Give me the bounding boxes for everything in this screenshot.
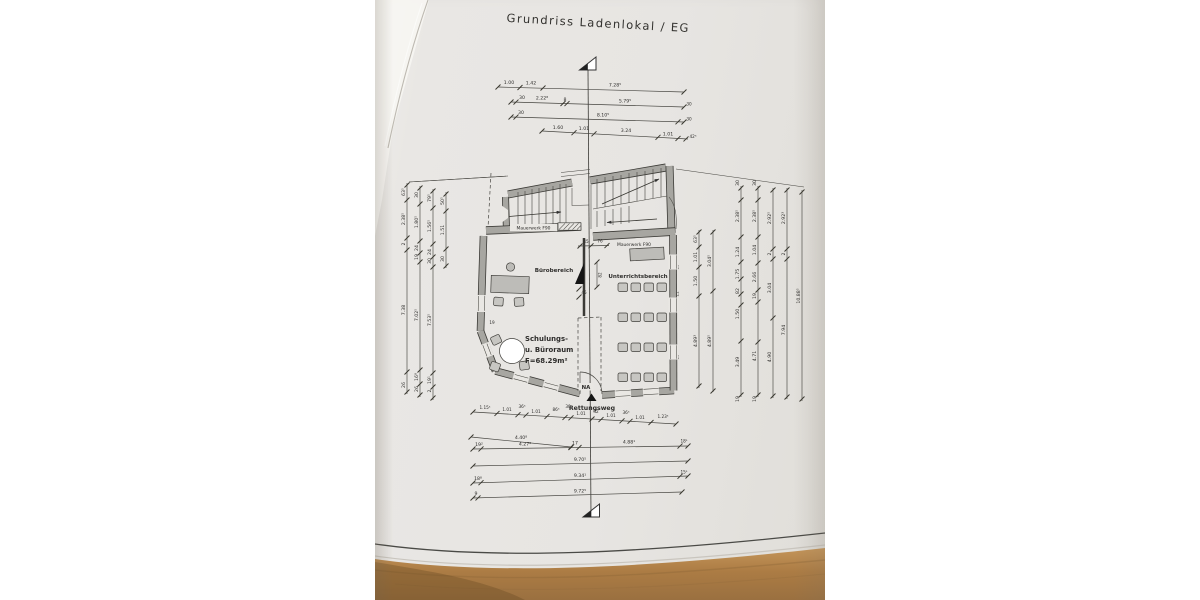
office-furniture (489, 263, 529, 372)
exit-label-na: NA (582, 385, 592, 391)
dim-label: 30 (686, 102, 692, 107)
dim-label: 18⁸ (474, 476, 482, 482)
desk (491, 275, 530, 293)
dim-label: 2 (427, 389, 433, 392)
door-symbol-black-triangle (575, 263, 584, 284)
dim-label: 7.02⁵ (414, 309, 420, 321)
chair (514, 297, 524, 306)
dim-label: 1.01 (576, 411, 586, 416)
dim-label: 4.88¹ (623, 440, 635, 446)
dim-label: 2.92⁵ (767, 212, 773, 224)
dim-label: 1.01 (579, 126, 589, 132)
dim-label: 2.66 (752, 272, 758, 282)
dim-label: 7.53⁵ (427, 314, 433, 326)
dim-label: 4.89³ (693, 335, 699, 347)
dim-label: 1.00 (504, 80, 514, 86)
dim-label: 2.38⁵ (752, 210, 758, 222)
chair (490, 334, 502, 346)
dim-label: 3.24 (621, 128, 631, 134)
dim-label: 1.60 (553, 125, 563, 131)
dim-label: 26 (401, 382, 407, 388)
round-table (500, 339, 525, 364)
drawing-frame-line (375, 533, 825, 553)
dim-label: 4.71 (752, 351, 758, 361)
dim-label: 2.38⁵ (735, 210, 741, 222)
dim-label: 1.42 (526, 81, 536, 87)
dim-label: 1.01 (606, 413, 616, 418)
dim-label: 30 (427, 258, 433, 264)
dim-label: 7.28⁵ (609, 83, 621, 89)
dim-label: 1.51 (440, 225, 446, 235)
dim-label: 1.01 (531, 409, 541, 414)
dim-label: 7.94 (781, 325, 787, 335)
dim-label: 19¹ (427, 376, 433, 384)
stool (506, 263, 514, 271)
dim-label: 1.01 (635, 415, 645, 420)
dim-label: 2 (401, 242, 407, 245)
dim-label: 24 (427, 249, 433, 255)
dim-label: 1.80⁵ (414, 216, 420, 228)
dim-label: 8 (564, 97, 567, 103)
dim-label: 4.89⁵ (707, 335, 713, 347)
dim-label: 63⁵ (693, 235, 699, 243)
dim-label: 42 (593, 409, 599, 414)
right-dimension-chains: 63⁵ 1.01 1.50 4.89³ 3.04⁵ 4.89⁵ 30 2.38⁵… (675, 169, 805, 402)
dim-label: 30 (752, 180, 758, 186)
dim-label: 9 (475, 491, 478, 497)
chair (493, 297, 503, 306)
dim-label: 42⁵ (689, 134, 696, 139)
mauerwerk-label-left: Mauerwerk F90 (517, 226, 551, 232)
dim-label: 10.88⁵ (796, 288, 802, 303)
dim-label: 1.01 (502, 407, 512, 412)
dim-label: 19 (735, 396, 741, 402)
dashed-boundary-line (488, 173, 491, 228)
dim-label: 1.75 (735, 269, 741, 279)
drawing-title: Grundriss Ladenlokal / EG (506, 11, 690, 35)
dim-label: 19 (489, 320, 495, 325)
dim-label: 4.40⁸ (515, 435, 527, 441)
dim-label: 1.23⁵ (657, 414, 668, 419)
dim-label: 7.38 (401, 305, 407, 315)
dim-label: 30 (519, 95, 525, 101)
room-label-buerobereich: Bürobereich (535, 268, 573, 274)
top-dimension-chains: 1.00 1.42 7.28⁵ 30 2.22⁸ 8 5.79⁵ 30 30 8… (496, 80, 697, 141)
dim-label: 1.01 (693, 252, 699, 262)
escape-route-arrow (587, 394, 597, 402)
screenshot-canvas: Grundriss Ladenlokal / EG 1.00 1.42 7.28… (0, 0, 1200, 600)
dim-label: 2 (767, 252, 773, 255)
dim-label: 24 (414, 245, 420, 251)
dim-label: 82 (735, 288, 741, 294)
dim-label: 4.90 (767, 352, 773, 362)
dim-label: 26 (414, 386, 420, 392)
dim-label: 1.15⁵ (479, 405, 490, 410)
dim-label: 1.50 (693, 276, 699, 286)
stair-up-arrow (602, 179, 659, 204)
board-table (630, 247, 665, 261)
dim-label: 30 (686, 117, 692, 122)
room-area-label: F=68.29m² (525, 357, 567, 365)
dim-label: 3.49 (735, 357, 741, 367)
dim-label: 86⁵ (552, 407, 559, 412)
room-label-unterrichtsbereich: Unterrichtsbereich (608, 274, 667, 280)
dim-label: 2 (781, 252, 787, 255)
dim-label: 36⁵ (518, 404, 525, 409)
dim-label: 19 (414, 254, 420, 260)
staircase-right (590, 166, 676, 233)
page-bottom-and-table (375, 533, 825, 600)
classroom-furniture (618, 247, 667, 381)
dim-label: 82 (598, 272, 603, 278)
dim-label: 2.38⁵ (401, 213, 407, 225)
dim-label: 79⁵ (427, 194, 433, 202)
photo-of-floor-plan: Grundriss Ladenlokal / EG 1.00 1.42 7.28… (375, 0, 825, 600)
dim-label: 30 (414, 192, 420, 198)
dim-label: 19² (475, 442, 483, 448)
dim-label: 9.70⁵ (574, 457, 586, 463)
dim-label: 9.72⁵ (574, 489, 586, 495)
dim-label: 30 (518, 110, 524, 116)
dim-label: 30 (565, 404, 571, 409)
stair-direction-arrow (607, 219, 657, 223)
dim-label: 50⁵ (440, 197, 446, 205)
dim-label: 45 (581, 290, 587, 295)
dim-label: 3.04 (767, 283, 773, 293)
dim-label: 16⁸ (414, 373, 420, 381)
dim-label: 30 (735, 180, 741, 186)
dim-label: 63⁵ (401, 188, 407, 196)
floor-plan-drawing: Grundriss Ladenlokal / EG 1.00 1.42 7.28… (375, 0, 825, 600)
dim-label: 1.24 (735, 247, 741, 257)
mauerwerk-label-right: Mauerwerk F90 (617, 242, 651, 248)
dim-label: 2.22⁸ (536, 96, 548, 102)
dim-label: 36⁵ (622, 410, 629, 415)
dim-label: 19 (752, 293, 758, 299)
dim-label: 8.10⁵ (597, 113, 609, 119)
dim-label: 17 (572, 441, 578, 447)
dim-label: 19 (752, 396, 758, 402)
dim-label: 3.04⁵ (707, 255, 713, 267)
dim-label: 15¹ (680, 470, 687, 475)
room-name-line: u. Büroraum (525, 346, 573, 354)
floor-plan: 45 76 82 45 19 (409, 166, 678, 412)
dim-label: 1.04 (752, 245, 758, 255)
dim-label: 4.27⁸ (519, 442, 531, 448)
dim-label: 45 (583, 239, 589, 244)
dim-label: 1.01 (663, 132, 673, 138)
page-curl (375, 0, 429, 236)
dim-label: 2.92³ (781, 212, 787, 224)
dim-label: 18¹ (680, 439, 687, 444)
dim-label: 76 (597, 239, 603, 244)
dim-label: 30 (440, 256, 446, 262)
dim-label: 1.50 (735, 309, 741, 319)
room-name-line: Schulungs- (525, 335, 568, 343)
bottom-dimension-chains: 1.15⁵ 1.01 36⁵ 1.01 86⁵ 30 1.01 42 1.01 … (469, 404, 691, 501)
dim-label: 1.56⁵ (427, 220, 433, 232)
dim-label: 9.34¹ (574, 473, 586, 479)
dim-label: 5.79⁵ (619, 99, 631, 105)
